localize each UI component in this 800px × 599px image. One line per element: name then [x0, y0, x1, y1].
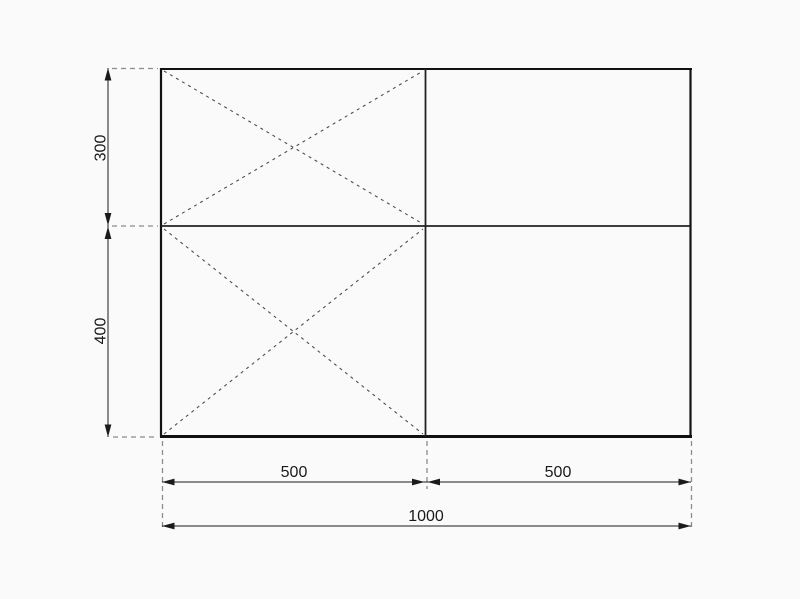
arrow-right-icon: [679, 523, 692, 530]
extension-lines: [112, 69, 692, 532]
arrow-right-icon: [412, 479, 425, 486]
interior-walls: [161, 69, 690, 436]
dimension-arrows: [105, 68, 691, 529]
arrow-left-icon: [162, 479, 175, 486]
dimension-label-top-height: 300: [93, 135, 110, 162]
arrow-down-icon: [105, 425, 112, 438]
diagonal-crosses: [164, 71, 423, 434]
dimension-lines: [108, 68, 691, 526]
arrow-down-icon: [105, 213, 112, 226]
dimension-label-right-width: 500: [545, 464, 572, 481]
arrow-left-icon: [162, 523, 175, 530]
arrow-right-icon: [679, 479, 692, 486]
dimensioned-plan-drawing: 300 400 500 500 1000: [0, 0, 800, 599]
arrow-left-icon: [428, 479, 441, 486]
dimension-label-bottom-height: 400: [93, 318, 110, 345]
arrow-up-icon: [105, 227, 112, 240]
dimension-label-left-width: 500: [281, 464, 308, 481]
technical-drawing-canvas: 300 400 500 500 1000: [0, 0, 800, 599]
dimension-label-total-width: 1000: [408, 508, 444, 525]
arrow-up-icon: [105, 68, 112, 81]
